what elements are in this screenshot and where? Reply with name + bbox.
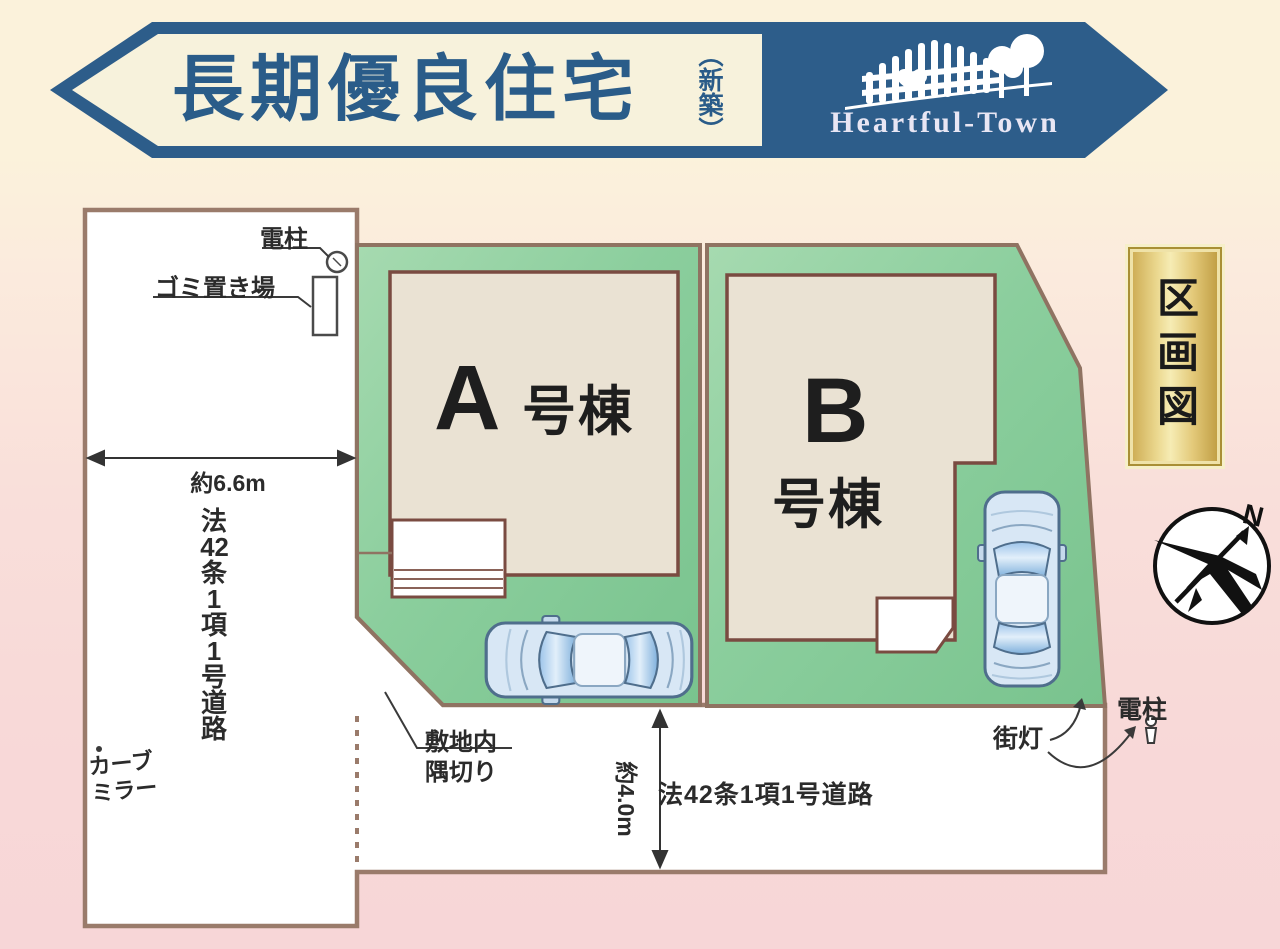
width-west-label: 約6.6m xyxy=(158,464,298,498)
porch-b xyxy=(877,598,953,652)
curve-mirror-label: カーブ ミラー xyxy=(87,747,158,808)
brand-name: Heartful-Town xyxy=(780,106,1110,140)
banner-subtitle: （新築） xyxy=(696,42,721,158)
width-south-label: 約4.0m xyxy=(611,743,645,855)
pole-arrowhead xyxy=(1124,726,1136,739)
road-south-label: 法42条1項1号道路 xyxy=(658,775,874,811)
banner-title: 長期優良住宅 xyxy=(172,44,688,136)
lot-a-letter: A xyxy=(434,352,500,444)
utility-pole-top-label: 電柱 xyxy=(260,219,308,254)
road-west-char: 条 xyxy=(199,560,229,586)
setback-label-line2: 隅切り xyxy=(425,752,497,787)
road-west-char: 1 xyxy=(199,638,229,664)
road-west-char: 道 xyxy=(199,690,229,716)
garbage-box-icon xyxy=(313,277,337,335)
lot-b-letter: B xyxy=(802,365,868,457)
road-west-char: 1 xyxy=(199,586,229,612)
road-west-char: 法 xyxy=(199,508,229,534)
utility-pole-right-label: 電柱 xyxy=(1117,690,1167,726)
lot-b-suffix: 号棟 xyxy=(772,478,884,532)
porch-a xyxy=(392,520,505,597)
car-b-icon xyxy=(978,492,1066,686)
car-a-icon xyxy=(486,616,692,704)
road-west-label: 法42条1項1号道路 xyxy=(198,508,229,788)
site-plan-page: 長期優良住宅 （新築） Heartful-Town 電柱 ゴミ置き場 約6.6m… xyxy=(0,0,1280,949)
street-light-label: 街灯 xyxy=(993,719,1043,755)
plan-type-plate: 区画図 xyxy=(1128,247,1222,466)
road-west-char: 号 xyxy=(199,664,229,690)
garbage-label: ゴミ置き場 xyxy=(155,268,275,303)
road-west-char: 項 xyxy=(199,612,229,638)
plan-type-label: 区画図 xyxy=(1145,276,1206,438)
road-west-char: 路 xyxy=(199,716,229,742)
lot-a-suffix: 号棟 xyxy=(522,385,634,439)
road-west-char: 42 xyxy=(199,534,229,560)
